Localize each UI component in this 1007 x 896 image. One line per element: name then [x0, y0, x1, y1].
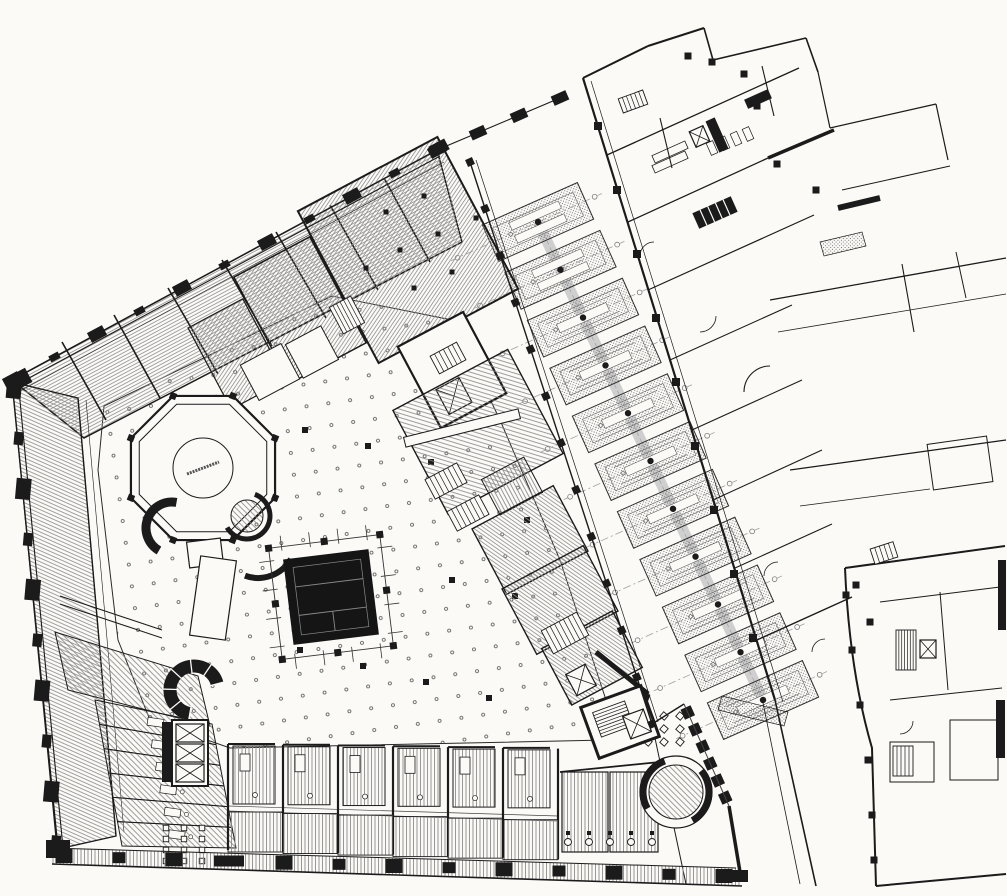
arcade-column [113, 852, 126, 863]
column-dot [384, 210, 389, 215]
column-dot [422, 194, 427, 199]
stair-treads [896, 630, 916, 670]
arcade-column [663, 869, 676, 880]
column-dot [867, 619, 874, 626]
column-dot [853, 582, 860, 589]
column-dot [813, 187, 820, 194]
grid-marker [772, 577, 777, 582]
grid-marker [615, 242, 620, 247]
bay-lower-floor [228, 812, 283, 852]
column-dot [360, 663, 366, 669]
bay-lower-floor [503, 820, 558, 860]
arcade-column [214, 856, 244, 867]
column-dot [436, 232, 441, 237]
column-dot [449, 577, 455, 583]
circle-feature [231, 500, 263, 532]
column-dot [297, 647, 303, 653]
seat-circle [649, 839, 656, 846]
bay-fixture [418, 795, 423, 800]
arcade-column [276, 856, 293, 870]
column-dot [709, 59, 716, 66]
bay-fixture [528, 796, 533, 801]
plan-layers [0, 0, 1007, 896]
room-rect [996, 700, 1005, 758]
arcade-column [166, 852, 183, 866]
grid-marker [750, 529, 755, 534]
arcade-column [606, 866, 623, 880]
grid-marker [592, 194, 597, 199]
column-dot [613, 186, 621, 194]
bay-closet [240, 754, 250, 771]
column-dot [754, 103, 761, 110]
sw-room-desk [164, 807, 181, 817]
grid-marker [817, 672, 822, 677]
column-dot [685, 53, 692, 60]
column-dot [364, 266, 369, 271]
bay-closet [350, 756, 360, 773]
column-dot [566, 831, 570, 835]
bay-lower-floor [338, 815, 393, 855]
column-dot [365, 443, 371, 449]
seat-circle [628, 839, 635, 846]
column-dot [594, 122, 602, 130]
room-rect [46, 840, 70, 858]
column-dot [474, 216, 479, 221]
room-rect [998, 560, 1006, 630]
elevator-xbox [176, 744, 204, 762]
arcade-column [386, 859, 403, 873]
bay-closet [295, 755, 305, 772]
pilaster [41, 734, 51, 748]
pilaster [43, 780, 60, 802]
grid-marker [705, 433, 710, 438]
column-dot [741, 71, 748, 78]
column-dot [633, 250, 641, 258]
seat-circle [586, 839, 593, 846]
bay-lower-floor [448, 818, 503, 858]
arcade-column [496, 862, 513, 876]
room-rect [732, 870, 748, 882]
table-square [199, 836, 205, 842]
grid-marker [635, 638, 640, 643]
table-square [163, 825, 169, 831]
column-dot [302, 427, 308, 433]
bay-fixture [473, 796, 478, 801]
bay-lower-floor [283, 814, 338, 854]
column-dot [869, 812, 876, 819]
column-dot [412, 286, 417, 291]
column-dot [672, 378, 680, 386]
table-square [181, 825, 187, 831]
grid-marker [658, 686, 663, 691]
table-square [181, 836, 187, 842]
bay-fixture [308, 793, 313, 798]
pilaster [34, 680, 51, 702]
pilaster [15, 478, 32, 500]
elevator-xbox [176, 764, 204, 782]
column-dot [691, 442, 699, 450]
column-dot [629, 831, 633, 835]
grid-marker [727, 481, 732, 486]
column-dot [857, 702, 864, 709]
sw-room-chair [180, 790, 184, 794]
column-dot [608, 831, 612, 835]
floorplan-page: Scanned black-and-white architectural gr… [0, 0, 1007, 896]
arcade-column [443, 862, 456, 873]
arcade-column [553, 866, 566, 877]
octagon-circle [173, 438, 233, 498]
pilaster [32, 633, 42, 647]
column-dot [843, 592, 850, 599]
seat-circle [607, 839, 614, 846]
column-dot [450, 270, 455, 275]
pilaster [23, 532, 33, 546]
grid-marker [637, 290, 642, 295]
column-dot [849, 647, 856, 654]
pilaster [24, 579, 41, 601]
column-dot [587, 831, 591, 835]
sw-room-desk [147, 717, 164, 727]
grid-marker [795, 625, 800, 630]
elevator-xbox [176, 724, 204, 742]
column-dot [774, 161, 781, 168]
sw-room-chair [189, 835, 193, 839]
room-rect [162, 722, 172, 782]
floorplan-drawing: Scanned black-and-white architectural gr… [0, 0, 1007, 896]
circle-feature [649, 765, 703, 819]
column-dot [710, 506, 718, 514]
sw-room-chair [185, 812, 189, 816]
stair-treads [893, 746, 913, 776]
arcade-column [333, 859, 346, 870]
bay-closet [515, 758, 525, 775]
elevator-xbox [920, 640, 936, 658]
column-dot [652, 314, 660, 322]
grid-marker [680, 733, 685, 738]
bay-fixture [363, 794, 368, 799]
column-dot [486, 695, 492, 701]
column-dot [423, 679, 429, 685]
column-dot [730, 570, 738, 578]
bay-lower-floor [393, 817, 448, 857]
bay-closet [405, 756, 415, 773]
pilaster [13, 432, 23, 446]
bay-closet [460, 757, 470, 774]
table-square [163, 836, 169, 842]
arcade-column [716, 869, 733, 883]
column-dot [749, 634, 757, 642]
table-square [199, 825, 205, 831]
column-dot [871, 857, 878, 864]
bay-fixture [253, 793, 258, 798]
column-dot [398, 248, 403, 253]
seat-circle [565, 839, 572, 846]
grid-marker [568, 494, 573, 499]
column-dot [650, 831, 654, 835]
column-dot [865, 757, 872, 764]
